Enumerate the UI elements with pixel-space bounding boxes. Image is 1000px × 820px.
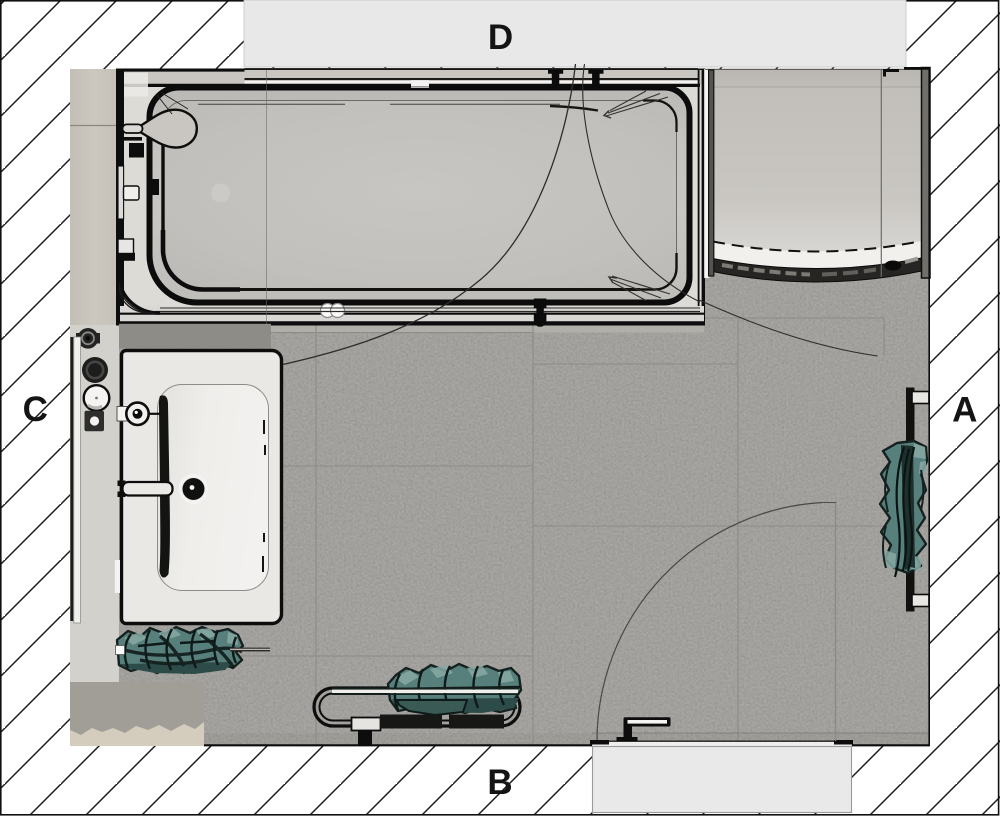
svg-text:D: D <box>488 18 513 57</box>
svg-text:C: C <box>23 390 48 429</box>
svg-text:A: A <box>952 391 977 430</box>
svg-text:B: B <box>487 763 512 802</box>
